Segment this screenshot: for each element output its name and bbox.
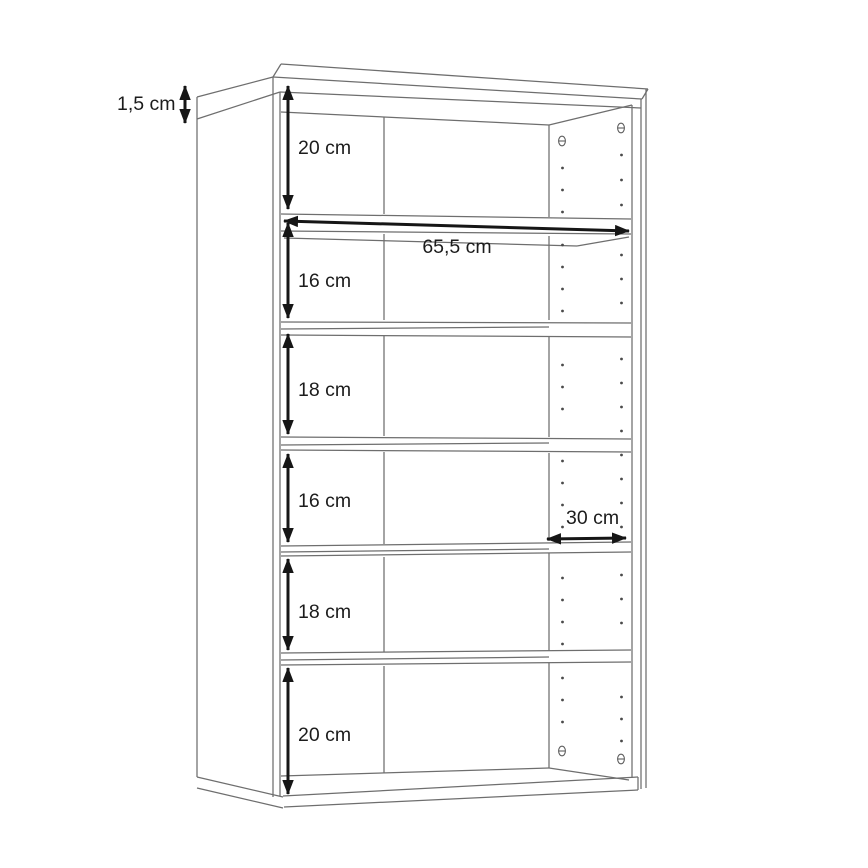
pin-hole-dot bbox=[620, 502, 623, 505]
pin-hole-dot bbox=[620, 302, 623, 305]
pin-hole-dot bbox=[561, 189, 564, 192]
top-panel-left-bevel-upper bbox=[197, 77, 273, 97]
pin-hole-dot bbox=[620, 204, 623, 207]
pin-hole-dot bbox=[561, 504, 564, 507]
compartment-1-label: 20 cm bbox=[298, 137, 351, 159]
pin-hole-dot bbox=[620, 454, 623, 457]
compartment-4-label: 16 cm bbox=[298, 490, 351, 512]
pin-hole-dot bbox=[620, 382, 623, 385]
pin-hole-dot bbox=[620, 154, 623, 157]
top-panel-front-top-edge bbox=[273, 77, 642, 99]
pin-hole-dot bbox=[561, 244, 564, 247]
compartment-3-label: 18 cm bbox=[298, 379, 351, 401]
compartment-5-label: 18 cm bbox=[298, 601, 351, 623]
cam-lock-icon bbox=[618, 754, 625, 764]
pin-hole-dot bbox=[561, 288, 564, 291]
pin-hole-dot bbox=[561, 211, 564, 214]
pin-hole-dot bbox=[620, 406, 623, 409]
shelf bbox=[281, 650, 631, 665]
top-panel-right-corner bbox=[642, 89, 648, 99]
pin-hole-dot bbox=[561, 460, 564, 463]
shelf bbox=[281, 322, 631, 337]
width-label: 65,5 cm bbox=[422, 236, 491, 258]
cabinet-outline bbox=[197, 64, 648, 808]
pin-hole-dot bbox=[561, 677, 564, 680]
top-panel-left-bevel-lower bbox=[197, 92, 280, 119]
pin-hole-dot bbox=[620, 696, 623, 699]
pin-hole-dot bbox=[561, 266, 564, 269]
shelf-pin-holes bbox=[561, 154, 623, 743]
pin-hole-dot bbox=[620, 430, 623, 433]
top-panel-left-corner bbox=[273, 64, 281, 77]
cam-lock-icon bbox=[559, 136, 566, 146]
pin-hole-dot bbox=[561, 721, 564, 724]
pin-hole-dot bbox=[620, 574, 623, 577]
pin-hole-dot bbox=[561, 599, 564, 602]
dimension-labels: 1,5 cm 20 cm 65,5 cm 16 cm 18 cm 16 cm 3… bbox=[117, 93, 619, 746]
pin-hole-dot bbox=[561, 386, 564, 389]
pin-hole-dot bbox=[561, 482, 564, 485]
shelf bbox=[281, 542, 631, 556]
shelf bbox=[281, 437, 631, 452]
pin-hole-dot bbox=[561, 526, 564, 529]
width-arrow bbox=[284, 221, 629, 231]
cam-lock-icon bbox=[559, 746, 566, 756]
pin-hole-dot bbox=[620, 254, 623, 257]
compartment-6-label: 20 cm bbox=[298, 724, 351, 746]
pin-hole-dot bbox=[561, 310, 564, 313]
pin-hole-dot bbox=[620, 622, 623, 625]
pin-hole-dot bbox=[561, 621, 564, 624]
right-panel-top-edge bbox=[549, 105, 632, 125]
pin-hole-dot bbox=[561, 364, 564, 367]
top-panel-back-edge bbox=[281, 64, 648, 89]
pin-hole-dot bbox=[561, 643, 564, 646]
ceiling-back-edge bbox=[281, 112, 549, 125]
dimension-arrows bbox=[185, 86, 629, 794]
pin-hole-dot bbox=[620, 718, 623, 721]
depth-arrow bbox=[547, 538, 626, 539]
bookshelf-dimension-diagram: 1,5 cm 20 cm 65,5 cm 16 cm 18 cm 16 cm 3… bbox=[0, 0, 868, 868]
top-thickness-label: 1,5 cm bbox=[117, 93, 176, 115]
pin-hole-dot bbox=[561, 577, 564, 580]
top-panel-front-bottom-edge bbox=[280, 92, 641, 108]
pin-hole-dot bbox=[561, 699, 564, 702]
bottom-panel bbox=[197, 768, 638, 808]
pin-hole-dot bbox=[620, 526, 623, 529]
pin-hole-dot bbox=[561, 167, 564, 170]
cam-lock-icon bbox=[618, 123, 625, 133]
pin-hole-dot bbox=[620, 179, 623, 182]
pin-hole-dot bbox=[620, 598, 623, 601]
diagram-canvas: 1,5 cm 20 cm 65,5 cm 16 cm 18 cm 16 cm 3… bbox=[0, 0, 868, 868]
pin-hole-dot bbox=[620, 740, 623, 743]
pin-hole-dot bbox=[620, 358, 623, 361]
depth-label: 30 cm bbox=[566, 507, 619, 529]
compartment-2-label: 16 cm bbox=[298, 270, 351, 292]
pin-hole-dot bbox=[620, 478, 623, 481]
pin-hole-dot bbox=[561, 408, 564, 411]
pin-hole-dot bbox=[620, 278, 623, 281]
